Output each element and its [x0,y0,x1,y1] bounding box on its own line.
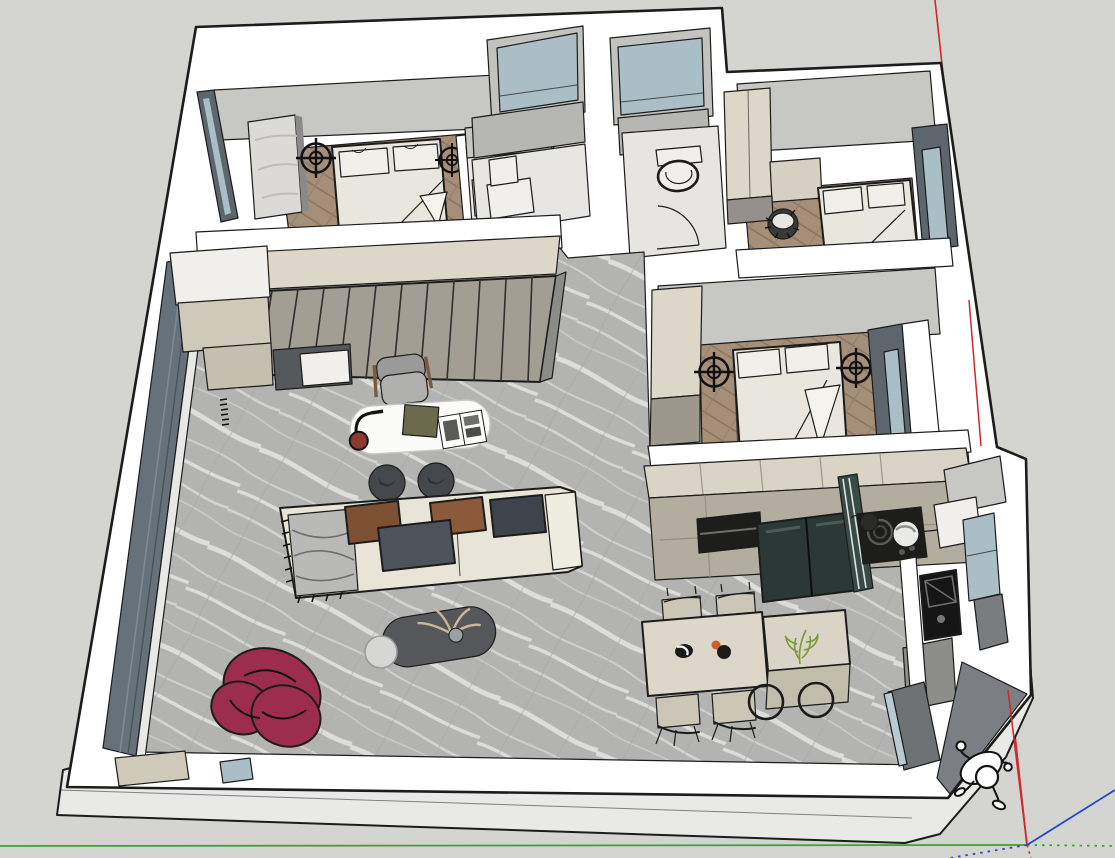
wardrobe[interactable] [770,158,822,202]
bathroom[interactable] [622,126,726,258]
wardrobe[interactable] [651,286,702,399]
head [976,766,998,788]
living-wardrobe-block[interactable] [170,215,566,390]
bed[interactable] [332,139,447,230]
bay-dark-wedge [974,594,1008,650]
dining-table[interactable] [642,612,768,696]
window-glass[interactable] [618,38,704,115]
fridge[interactable] [757,512,859,602]
marble-cabinet[interactable] [248,115,302,219]
laundry-room[interactable] [472,26,590,234]
hand [957,742,966,751]
cushion[interactable] [490,495,546,537]
island-cabinet[interactable] [763,610,850,709]
book[interactable] [403,405,439,438]
cabinet-front[interactable] [203,343,273,390]
appliance-stack[interactable] [920,570,961,640]
dish[interactable] [717,645,731,659]
wardrobe-base [650,395,700,446]
hand [1004,763,1012,771]
stool[interactable] [369,465,405,501]
bay-window-glass[interactable] [963,513,1000,601]
cabinet-top[interactable] [170,246,270,305]
viewport-canvas[interactable] [0,0,1115,858]
washer-box[interactable] [489,156,518,186]
model-view[interactable] [0,0,1115,858]
axis-green [0,845,1115,846]
open-magazine[interactable] [438,410,487,449]
cushion[interactable] [378,520,455,571]
stool[interactable] [418,463,454,499]
side-table[interactable] [365,636,397,668]
wardrobe-base [727,196,773,224]
desk[interactable] [348,399,492,456]
pot[interactable] [860,513,878,531]
window-glass[interactable] [220,758,253,783]
cabinet-drawer[interactable] [300,350,350,386]
